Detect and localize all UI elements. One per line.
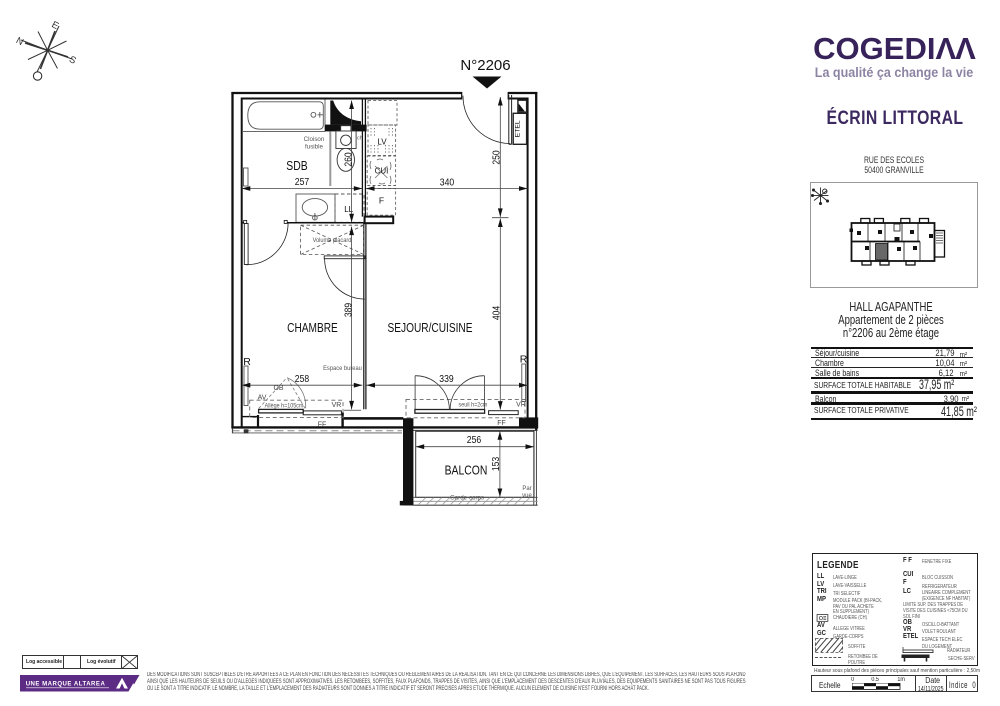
svg-text:vue: vue <box>522 493 532 499</box>
svg-text:FF: FF <box>497 420 506 427</box>
svg-text:CHAMBRE: CHAMBRE <box>287 321 338 335</box>
svg-text:OB: OB <box>273 385 283 392</box>
svg-text:VR: VR <box>516 402 526 409</box>
svg-text:N°2206: N°2206 <box>460 57 510 74</box>
svg-text:UNE MARQUE ALTAREA: UNE MARQUE ALTAREA <box>26 680 106 687</box>
svg-text:R: R <box>243 356 251 368</box>
svg-text:R: R <box>520 354 528 366</box>
svg-text:LV: LV <box>377 138 387 147</box>
svg-text:Volume placard: Volume placard <box>313 238 352 244</box>
svg-text:Par: Par <box>522 486 531 492</box>
svg-text:BALCON: BALCON <box>445 463 488 477</box>
svg-text:260: 260 <box>343 152 354 166</box>
svg-text:FF: FF <box>318 422 327 429</box>
svg-text:256: 256 <box>467 435 481 446</box>
svg-text:153: 153 <box>491 457 502 471</box>
svg-text:339: 339 <box>439 374 453 385</box>
svg-text:N: N <box>14 35 25 48</box>
svg-text:ETEL: ETEL <box>515 120 522 137</box>
svg-text:F: F <box>379 196 384 206</box>
svg-text:LL: LL <box>344 205 353 214</box>
svg-text:404: 404 <box>491 306 502 320</box>
svg-text:E: E <box>50 19 61 32</box>
svg-text:Garde-corps: Garde-corps <box>450 494 484 501</box>
svg-text:CUI: CUI <box>375 167 389 176</box>
svg-text:340: 340 <box>440 177 454 188</box>
svg-text:389: 389 <box>343 303 354 317</box>
svg-text:S: S <box>67 54 78 67</box>
svg-text:AV: AV <box>258 395 267 402</box>
svg-text:Cloison: Cloison <box>304 136 325 143</box>
svg-text:seuil h=2cm: seuil h=2cm <box>459 402 488 408</box>
svg-text:250: 250 <box>491 150 502 164</box>
svg-text:258: 258 <box>295 374 309 385</box>
svg-text:fusible: fusible <box>305 144 323 151</box>
svg-text:SDB: SDB <box>286 159 308 173</box>
svg-text:Allège h=105cm: Allège h=105cm <box>265 403 304 409</box>
svg-text:Espace bureau: Espace bureau <box>323 365 362 373</box>
svg-text:VR: VR <box>332 402 342 409</box>
svg-text:257: 257 <box>295 177 309 188</box>
svg-text:SEJOUR/CUISINE: SEJOUR/CUISINE <box>388 321 473 335</box>
